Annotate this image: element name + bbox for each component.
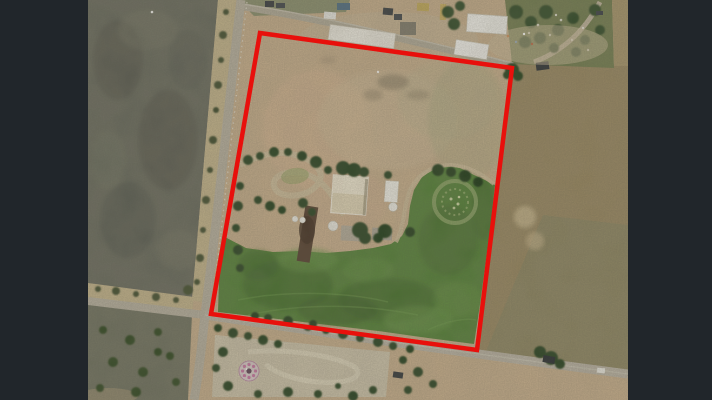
aerial-scene	[88, 0, 628, 400]
texture-grain	[88, 0, 628, 400]
letterbox-left	[0, 0, 88, 400]
letterboxed-canvas	[0, 0, 712, 400]
aerial-photo	[88, 0, 628, 400]
letterbox-right	[628, 0, 712, 400]
